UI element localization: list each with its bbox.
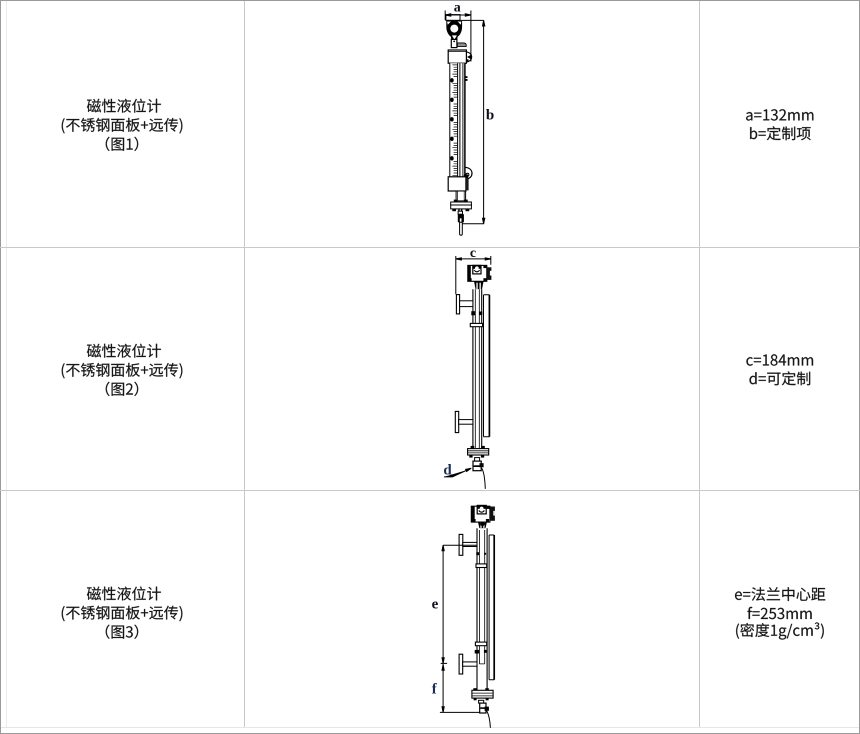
- svg-text:d: d: [443, 462, 452, 478]
- svg-text:b: b: [486, 108, 494, 124]
- svg-text:a: a: [454, 1, 461, 16]
- svg-text:c: c: [470, 247, 476, 261]
- svg-text:e: e: [432, 597, 439, 613]
- svg-text:f: f: [432, 682, 438, 698]
